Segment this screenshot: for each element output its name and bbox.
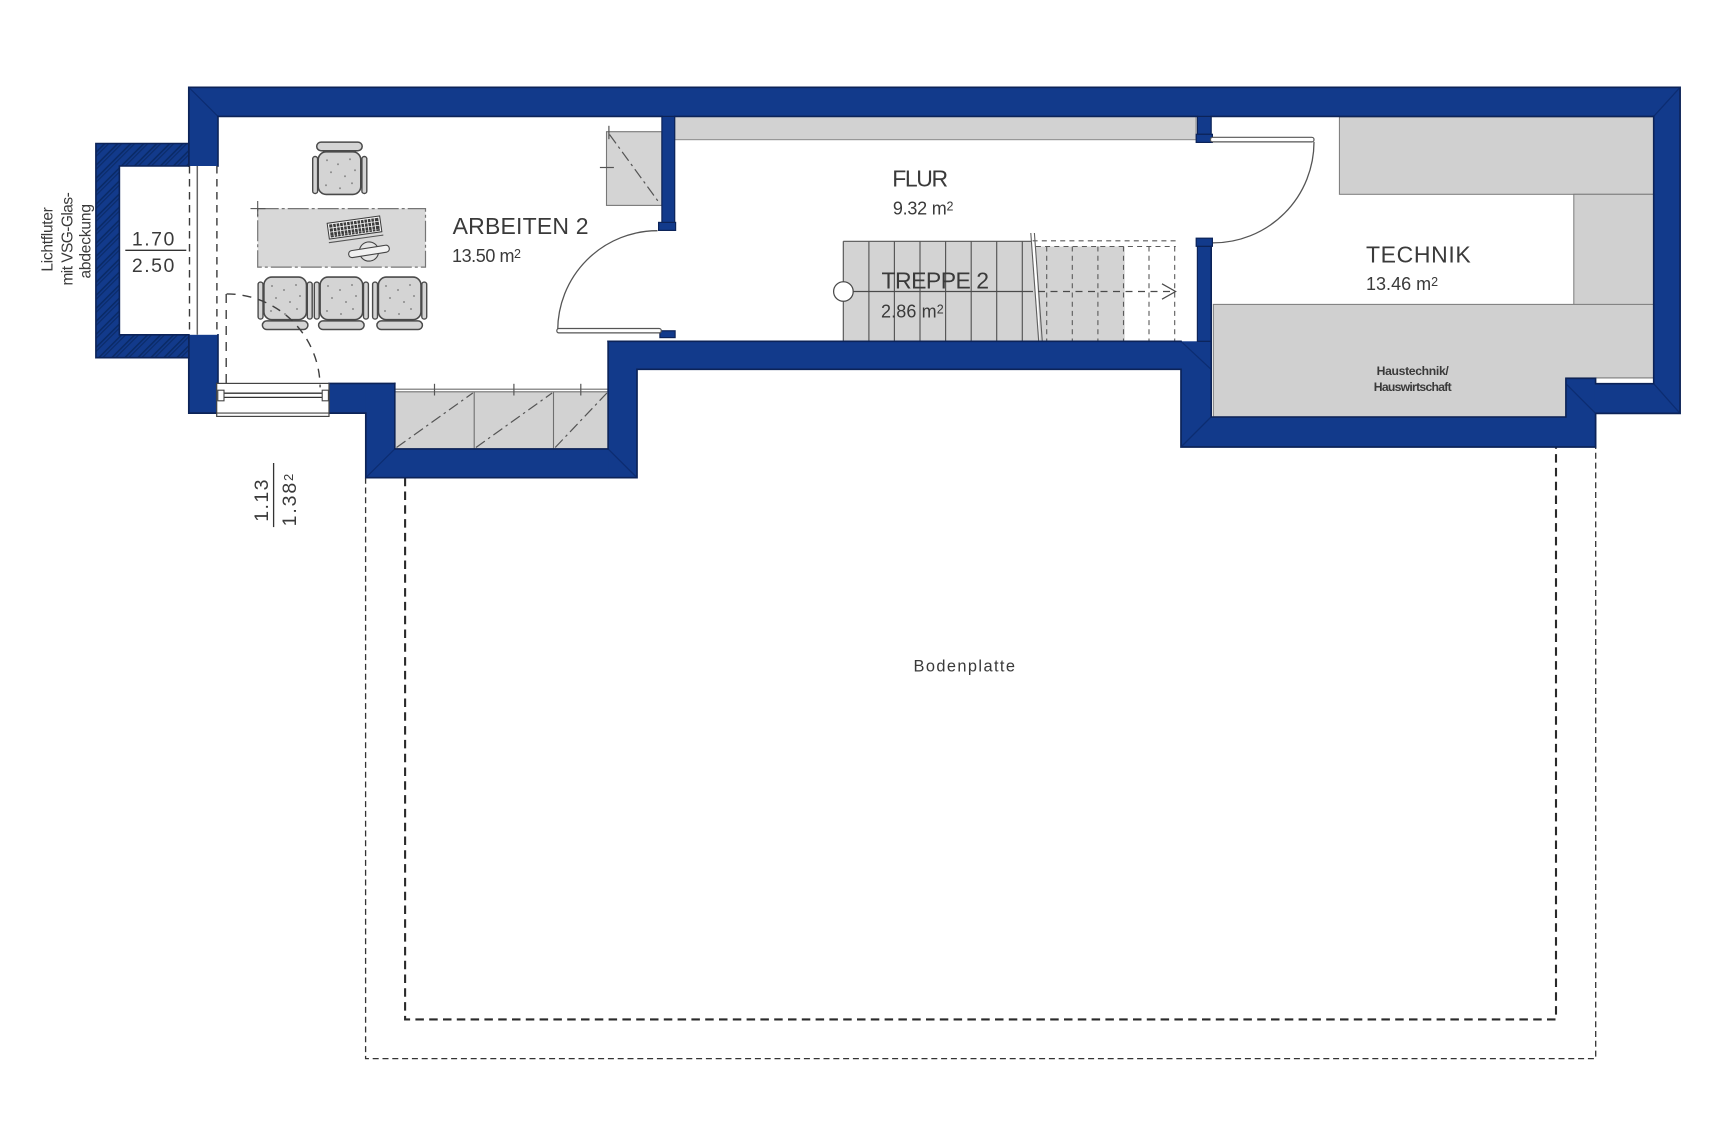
svg-text:2.86 m2: 2.86 m2 xyxy=(881,301,944,321)
svg-text:Bodenplatte: Bodenplatte xyxy=(914,657,1016,675)
svg-text:TREPPE 2: TREPPE 2 xyxy=(882,268,990,294)
svg-text:FLUR: FLUR xyxy=(892,166,948,192)
svg-text:9.32 m2: 9.32 m2 xyxy=(893,198,954,218)
svg-text:Lichtfluter: Lichtfluter xyxy=(39,207,56,272)
svg-text:2.50: 2.50 xyxy=(132,255,175,277)
svg-text:abdeckung: abdeckung xyxy=(78,204,95,279)
svg-text:TECHNIK: TECHNIK xyxy=(1366,242,1471,268)
svg-text:Haustechnik/: Haustechnik/ xyxy=(1377,364,1450,378)
svg-text:ARBEITEN 2: ARBEITEN 2 xyxy=(453,213,589,239)
svg-text:mit VSG-Glas-: mit VSG-Glas- xyxy=(59,192,76,285)
svg-text:Hauswirtschaft: Hauswirtschaft xyxy=(1374,380,1452,394)
svg-text:1.70: 1.70 xyxy=(132,229,175,251)
svg-text:13.46 m2: 13.46 m2 xyxy=(1366,274,1438,294)
svg-text:1.13: 1.13 xyxy=(251,480,273,522)
svg-text:13.50 m2: 13.50 m2 xyxy=(452,246,521,266)
